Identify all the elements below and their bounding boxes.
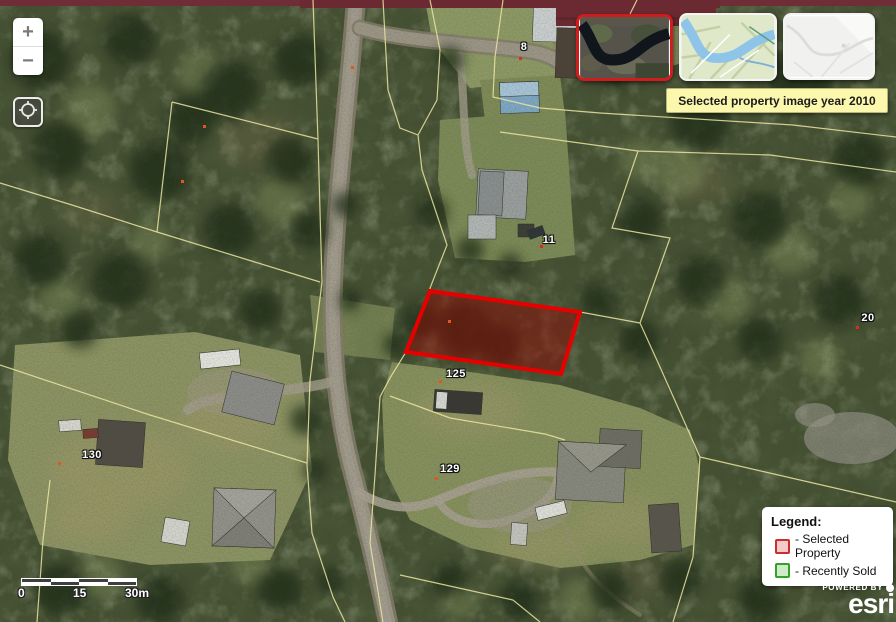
legend-item-label: - Selected Property xyxy=(795,532,885,560)
zoom-out-button[interactable]: − xyxy=(13,47,43,75)
basemap-tooltip: Selected property image year 2010 xyxy=(666,88,888,113)
scale-label-30m: 30m xyxy=(125,586,149,600)
target-extent-icon xyxy=(18,100,38,125)
legend-panel: Legend: - Selected Property - Recently S… xyxy=(762,507,893,586)
basemap-thumbnail-street-map[interactable] xyxy=(679,13,777,81)
zoom-in-button[interactable]: + xyxy=(13,18,43,46)
scale-bar-segments xyxy=(21,578,137,586)
street-map-thumbnail-icon xyxy=(681,15,775,79)
basemap-thumbnail-light-gray[interactable] xyxy=(783,13,875,80)
scale-label-0: 0 xyxy=(18,586,25,600)
selected-property-swatch-icon xyxy=(775,539,790,554)
esri-attribution: POWERED BY esri xyxy=(822,584,894,618)
scale-bar: 0 15 30m xyxy=(21,578,137,586)
legend-item-label: - Recently Sold xyxy=(795,564,876,578)
recently-sold-swatch-icon xyxy=(775,563,790,578)
scale-label-15: 15 xyxy=(73,586,86,600)
legend-item-selected-property: - Selected Property xyxy=(771,532,885,560)
light-gray-thumbnail-icon xyxy=(785,15,873,78)
gis-map-application: 8 11 20 125 129 130 + − xyxy=(0,0,896,622)
aerial-imagery-thumbnail-icon xyxy=(579,17,670,78)
tooltip-text: Selected property image year 2010 xyxy=(678,94,875,108)
zoom-control: + − xyxy=(13,18,43,75)
legend-title: Legend: xyxy=(771,514,885,529)
legend-item-recently-sold: - Recently Sold xyxy=(771,563,885,578)
default-extent-button[interactable] xyxy=(13,97,43,127)
basemap-thumbnail-aerial-selected[interactable] xyxy=(576,14,673,81)
esri-logo-text: esri xyxy=(822,590,894,618)
